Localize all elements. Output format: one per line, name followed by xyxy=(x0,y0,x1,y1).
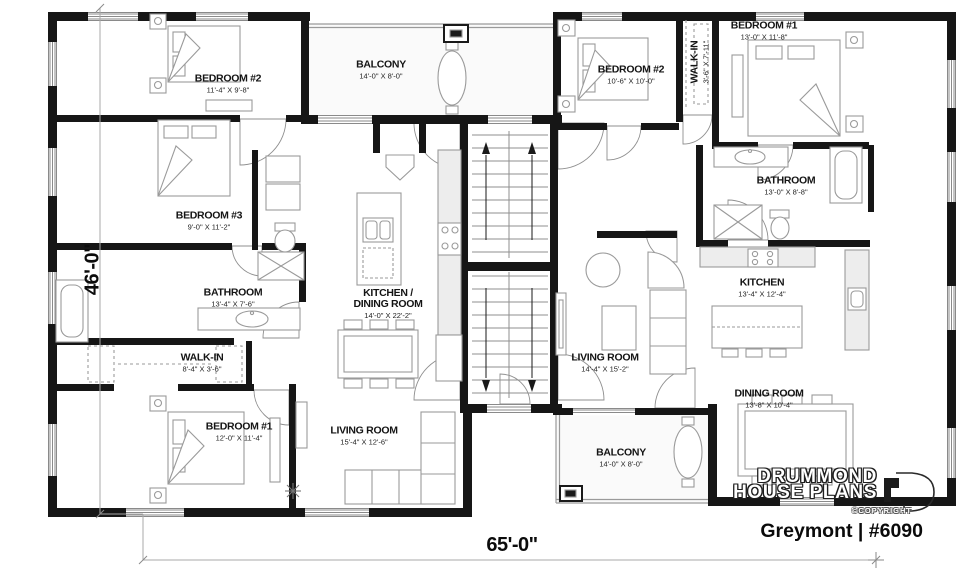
room-label-walkin-right: WALK-IN3'-6" X 7'-11" xyxy=(690,41,711,84)
room-label-kitchen-right: KITCHEN13'-4" X 12'-4" xyxy=(738,278,785,299)
room-label-balcony-bottom: BALCONY14'-0" X 8'-0" xyxy=(596,448,646,469)
copyright-text: ©COPYRIGHT xyxy=(852,506,912,515)
floorplan-canvas: BEDROOM #211'-4" X 9'-8" BALCONY14'-0" X… xyxy=(0,0,960,569)
room-label-bedroom1-left: BEDROOM #112'-0" X 11'-4" xyxy=(206,422,272,443)
room-label-kitchen-dining-left: KITCHEN / DINING ROOM14'-0" X 22'-2" xyxy=(353,288,422,320)
room-label-bathroom-right: BATHROOM13'-0" X 8'-8" xyxy=(757,176,816,197)
brand-wordmark: DRUMMOND HOUSE PLANS xyxy=(733,469,877,501)
room-label-bathroom-left: BATHROOM13'-4" X 7'-6" xyxy=(204,288,263,309)
dimension-height: 46'-0" xyxy=(82,235,105,305)
room-label-bedroom3-left: BEDROOM #39'-0" X 11'-2" xyxy=(176,211,242,232)
room-label-walkin-left: WALK-IN8'-4" X 3'-6" xyxy=(181,353,224,374)
room-label-living-right: LIVING ROOM14'-4" X 15'-2" xyxy=(571,353,638,374)
room-label-bedroom2-right: BEDROOM #210'-6" X 10'-0" xyxy=(598,65,664,86)
dimension-width: 65'-0" xyxy=(452,534,572,557)
room-label-bedroom2-left: BEDROOM #211'-4" X 9'-8" xyxy=(195,74,261,95)
room-label-dining-right: DINING ROOM13'-8" X 10'-4" xyxy=(734,389,803,410)
room-label-living-left: LIVING ROOM15'-4" X 12'-6" xyxy=(330,426,397,447)
plan-title: Greymont | #6090 xyxy=(760,520,923,543)
room-label-bedroom1-right: BEDROOM #113'-0" X 11'-8" xyxy=(731,21,797,42)
room-label-balcony-top: BALCONY14'-0" X 8'-0" xyxy=(356,60,406,81)
brand-line-2: HOUSE PLANS xyxy=(733,485,877,501)
